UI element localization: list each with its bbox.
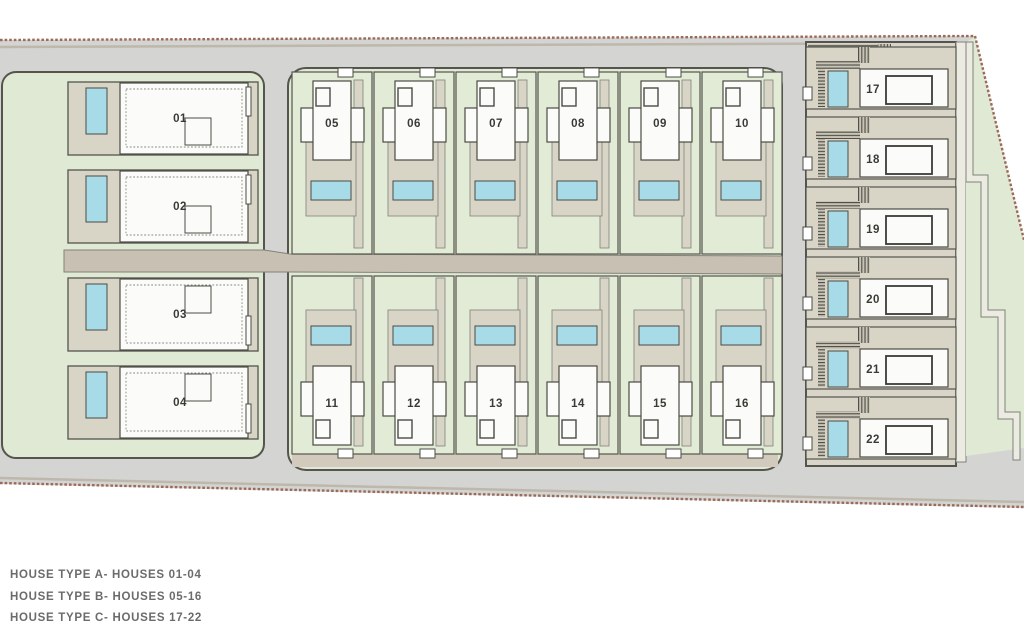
pool — [393, 181, 433, 200]
gate — [803, 87, 812, 100]
house-number: 08 — [571, 118, 585, 130]
stair-hatch — [816, 271, 860, 279]
house-plot-08: 08 — [538, 68, 618, 254]
pool — [828, 141, 848, 177]
house-number: 01 — [173, 113, 187, 125]
pool — [393, 326, 433, 345]
house-plot-17: 17 — [803, 47, 956, 109]
gate — [803, 157, 812, 170]
house-number: 17 — [866, 84, 880, 96]
house-plot-06: 06 — [374, 68, 454, 254]
pool — [721, 181, 761, 200]
entry-square — [185, 374, 211, 401]
house-number: 22 — [866, 434, 880, 446]
edge-bar — [246, 404, 251, 433]
stair-hatch — [816, 341, 860, 349]
stair-hatch — [858, 187, 870, 203]
house-plot-10: 10 — [702, 68, 782, 254]
stair-hatch — [816, 61, 860, 69]
inner-courtyard — [886, 426, 932, 454]
entry-square — [480, 88, 494, 106]
house-plot-05: 05 — [292, 68, 372, 254]
gate — [748, 68, 763, 77]
pool — [639, 326, 679, 345]
edge-bar — [246, 87, 251, 116]
gate — [584, 449, 599, 458]
house-number: 15 — [653, 398, 667, 410]
pool — [828, 71, 848, 107]
gate — [803, 297, 812, 310]
entry-square — [316, 88, 330, 106]
pool — [721, 326, 761, 345]
stair-hatch — [818, 349, 825, 387]
sidewalk-band — [292, 454, 778, 467]
house-plot-20: 20 — [803, 257, 956, 319]
house-plot-04: 04 — [68, 366, 258, 439]
house-plot-03: 03 — [68, 278, 258, 351]
entry-square — [398, 88, 412, 106]
pool — [828, 351, 848, 387]
house-number: 18 — [866, 154, 880, 166]
pool — [86, 88, 107, 134]
entry-square — [726, 88, 740, 106]
pool — [557, 326, 597, 345]
inner-courtyard — [886, 146, 932, 174]
house-plot-15: 15 — [620, 276, 700, 458]
gate — [338, 449, 353, 458]
pool — [475, 326, 515, 345]
house-plot-14: 14 — [538, 276, 618, 458]
house-plot-22: 22 — [803, 397, 956, 459]
house-number: 07 — [489, 118, 503, 130]
stair-hatch — [816, 131, 860, 139]
entry-square — [185, 118, 211, 145]
entry-square — [185, 206, 211, 233]
stair-hatch — [818, 279, 825, 317]
legend-item-type-c: HOUSE TYPE C- HOUSES 17-22 — [10, 612, 202, 624]
entry-square — [316, 420, 330, 438]
house-number: 09 — [653, 118, 667, 130]
inner-courtyard — [886, 286, 932, 314]
walkway-strip — [956, 42, 966, 462]
entry-square — [562, 420, 576, 438]
house-number: 13 — [489, 398, 503, 410]
entry-square — [398, 420, 412, 438]
gate — [803, 437, 812, 450]
stair-hatch — [858, 117, 870, 133]
pool — [828, 211, 848, 247]
house-plot-01: 01 — [68, 82, 258, 155]
gate — [502, 449, 517, 458]
stair-hatch — [816, 201, 860, 209]
green-wedge — [966, 37, 1024, 456]
house-number: 11 — [325, 398, 338, 410]
pool — [86, 176, 107, 222]
gate — [666, 449, 681, 458]
house-number: 20 — [866, 294, 880, 306]
stair-hatch — [858, 327, 870, 343]
gate — [338, 68, 353, 77]
entry-square — [480, 420, 494, 438]
house-plot-18: 18 — [803, 117, 956, 179]
entry-square — [185, 286, 211, 313]
pool — [311, 326, 351, 345]
stair-hatch — [818, 209, 825, 247]
stair-hatch — [858, 257, 870, 273]
gate — [420, 68, 435, 77]
house-number: 21 — [866, 364, 880, 376]
gate — [666, 68, 681, 77]
pool — [86, 372, 107, 418]
entry-square — [644, 88, 658, 106]
legend-item-type-b: HOUSE TYPE B- HOUSES 05-16 — [10, 591, 202, 603]
house-plot-11: 11 — [292, 276, 372, 458]
site-plan-page: 0102030405060708091011121314151617181920… — [0, 0, 1024, 640]
house-plot-21: 21 — [803, 327, 956, 389]
pool — [475, 181, 515, 200]
pool — [828, 281, 848, 317]
house-number: 16 — [735, 398, 749, 410]
house-number: 14 — [571, 398, 585, 410]
pool — [557, 181, 597, 200]
inner-courtyard — [886, 216, 932, 244]
entry-square — [644, 420, 658, 438]
house-number: 12 — [407, 398, 421, 410]
legend-item-type-a: HOUSE TYPE A- HOUSES 01-04 — [10, 569, 202, 581]
house-number: 06 — [407, 118, 421, 130]
gate — [803, 367, 812, 380]
stair-hatch — [858, 47, 870, 63]
house-number: 02 — [173, 201, 187, 213]
site-plan-canvas: 0102030405060708091011121314151617181920… — [0, 0, 1024, 640]
house-number: 10 — [735, 118, 749, 130]
pool — [86, 284, 107, 330]
gate — [420, 449, 435, 458]
house-plot-02: 02 — [68, 170, 258, 243]
house-plot-19: 19 — [803, 187, 956, 249]
stair-hatch — [818, 69, 825, 107]
house-number: 19 — [866, 224, 880, 236]
gate — [502, 68, 517, 77]
house-plot-09: 09 — [620, 68, 700, 254]
house-plot-16: 16 — [702, 276, 782, 458]
house-plot-12: 12 — [374, 276, 454, 458]
gate — [803, 227, 812, 240]
house-plot-13: 13 — [456, 276, 536, 458]
edge-bar — [246, 175, 251, 204]
stair-hatch — [818, 419, 825, 457]
pool — [311, 181, 351, 200]
house-number: 04 — [173, 397, 187, 409]
stair-hatch — [816, 411, 860, 419]
stair-hatch — [818, 139, 825, 177]
edge-bar — [246, 316, 251, 345]
house-plot-07: 07 — [456, 68, 536, 254]
entry-square — [726, 420, 740, 438]
house-number: 03 — [173, 309, 187, 321]
pool — [639, 181, 679, 200]
stair-hatch — [858, 397, 870, 413]
legend: HOUSE TYPE A- HOUSES 01-04 HOUSE TYPE B-… — [10, 569, 202, 634]
inner-courtyard — [886, 76, 932, 104]
gate — [748, 449, 763, 458]
gate — [584, 68, 599, 77]
inner-courtyard — [886, 356, 932, 384]
pool — [828, 421, 848, 457]
house-number: 05 — [325, 118, 339, 130]
entry-square — [562, 88, 576, 106]
